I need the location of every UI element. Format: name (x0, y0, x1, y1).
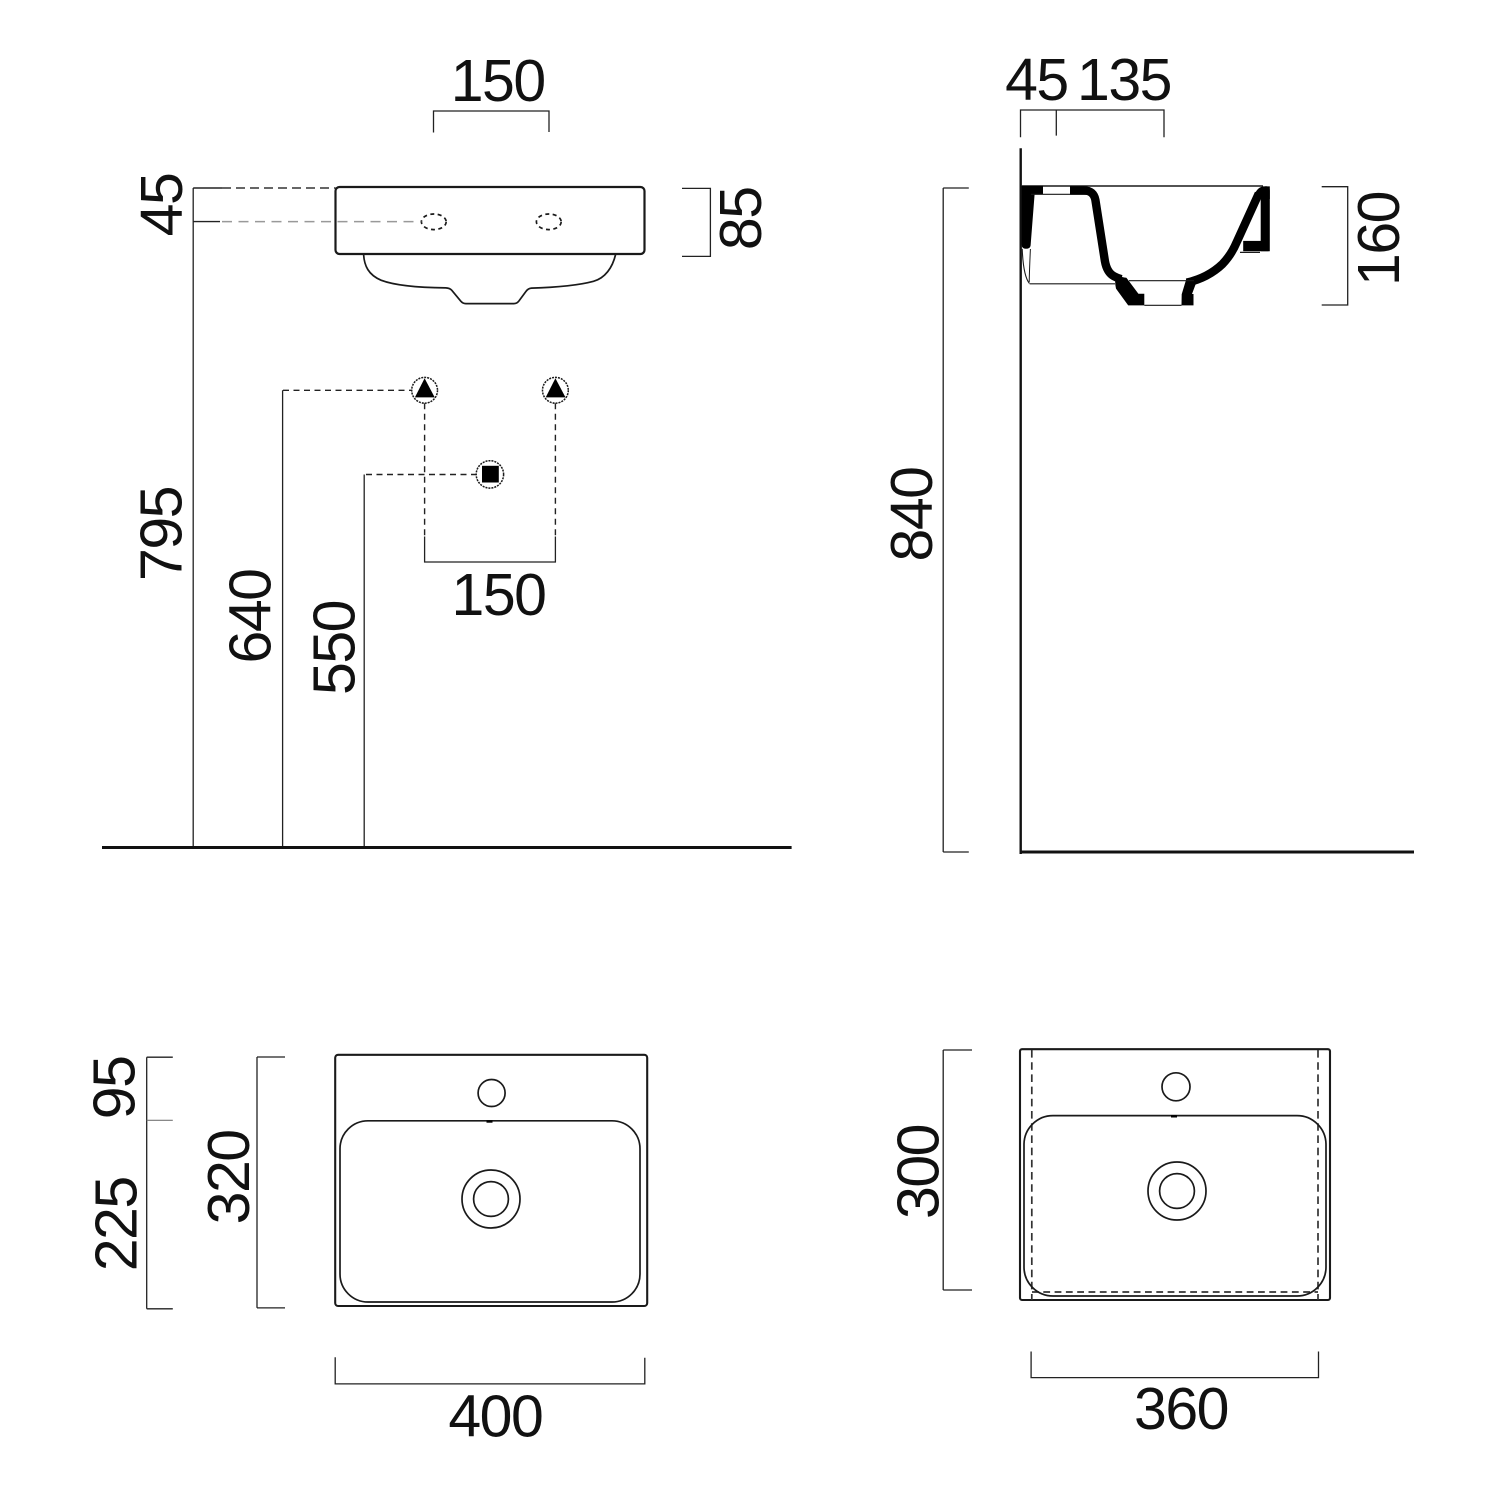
svg-text:320: 320 (196, 1130, 262, 1224)
svg-text:45: 45 (1005, 47, 1068, 113)
svg-text:795: 795 (128, 487, 194, 581)
svg-text:640: 640 (218, 570, 284, 664)
svg-text:160: 160 (1346, 192, 1412, 286)
svg-text:225: 225 (84, 1177, 150, 1271)
svg-text:95: 95 (81, 1057, 147, 1120)
svg-text:150: 150 (452, 562, 546, 628)
svg-text:360: 360 (1134, 1376, 1228, 1442)
svg-text:300: 300 (886, 1125, 952, 1219)
svg-text:85: 85 (708, 187, 774, 250)
svg-text:135: 135 (1077, 47, 1171, 113)
svg-text:400: 400 (448, 1383, 542, 1449)
svg-text:45: 45 (129, 174, 195, 237)
svg-text:550: 550 (302, 601, 368, 695)
svg-text:150: 150 (451, 48, 545, 114)
svg-text:840: 840 (879, 468, 945, 562)
